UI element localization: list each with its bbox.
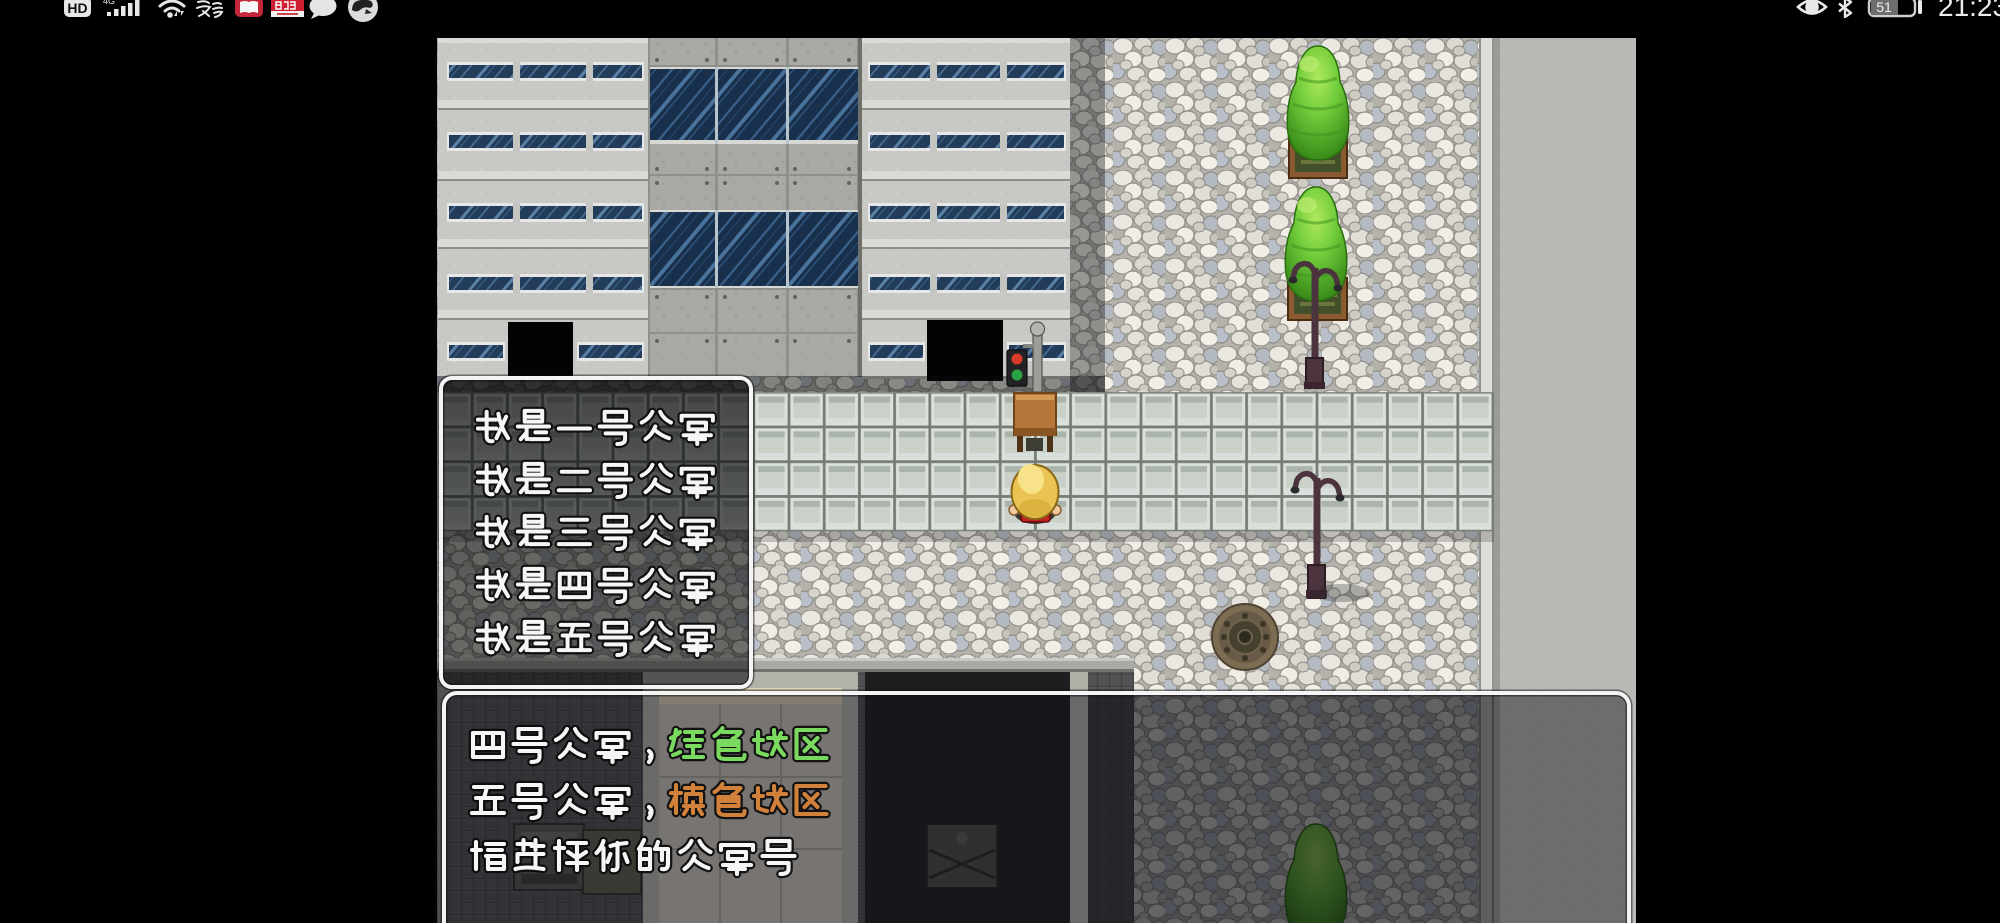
- svg-text:51: 51: [1876, 0, 1892, 15]
- svg-text:21:23: 21:23: [1938, 0, 2000, 22]
- svg-text:4G: 4G: [103, 0, 115, 6]
- svg-text:HD: HD: [67, 0, 87, 16]
